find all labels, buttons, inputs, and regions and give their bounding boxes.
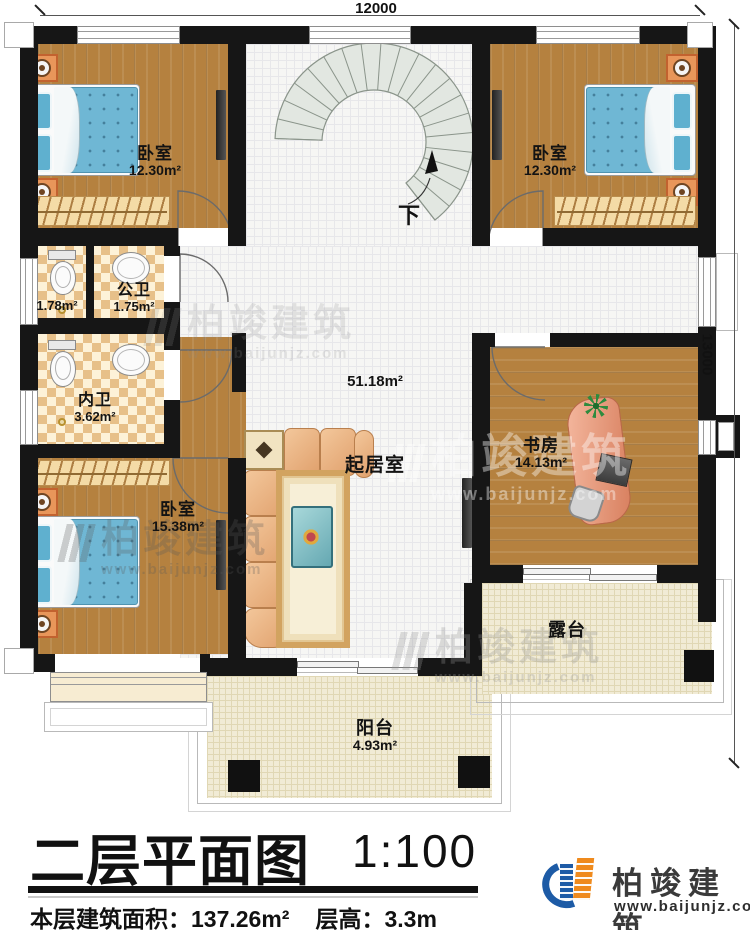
room-label-study: 书房 14.13m² <box>495 436 587 471</box>
interior-wall <box>550 333 716 347</box>
interior-wall <box>657 565 716 583</box>
stair-hall-floor <box>246 44 472 246</box>
room-area: 14.13m² <box>495 455 587 471</box>
room-area: 12.30m² <box>100 163 210 179</box>
interior-wall <box>472 333 495 347</box>
lamp-icon <box>673 59 691 77</box>
bay-window-frame <box>50 708 207 726</box>
logo-url: www.baijunjz.com <box>614 898 750 915</box>
window <box>20 258 38 325</box>
room-label-terrace: 露台 <box>532 620 602 640</box>
window <box>698 257 716 327</box>
interior-wall <box>164 246 180 256</box>
toilet-icon <box>50 351 76 387</box>
window <box>309 26 411 44</box>
column <box>684 650 714 682</box>
tv-icon <box>216 90 226 160</box>
blanket <box>54 519 80 605</box>
room-label-bedroom-top-left: 卧室 12.30m² <box>100 144 210 179</box>
interior-wall <box>472 26 490 246</box>
room-name: 阳台 <box>328 718 422 738</box>
plant-icon <box>584 394 608 418</box>
room-area: 3.62m² <box>50 410 140 425</box>
tv-icon <box>462 478 472 548</box>
floor-height-label: 层高： <box>315 906 384 930</box>
dimension-tick <box>694 4 705 15</box>
sheet-info: 本层建筑面积：137.26m²层高：3.3m <box>30 900 437 930</box>
sink-icon <box>112 344 150 376</box>
equipment-niche-inner <box>718 422 734 451</box>
side-table <box>244 430 284 470</box>
sink-icon <box>112 252 150 284</box>
floor-plan-sheet: 柏竣建筑 www.baijunjz.com 柏竣建筑 www.baijunjz.… <box>0 0 750 930</box>
bay-window <box>50 672 207 702</box>
interior-wall <box>482 565 523 583</box>
sliding-door <box>297 661 359 668</box>
wardrobe <box>28 196 170 226</box>
column <box>458 756 490 788</box>
dimension-line-top <box>40 15 700 16</box>
sheet-title: 二层平面图 <box>30 816 310 896</box>
logo-building-icon <box>560 864 573 900</box>
title-underline <box>28 886 478 893</box>
room-label-living-room: 起居室 <box>328 455 422 476</box>
interior-wall <box>20 228 178 246</box>
table-decor-icon <box>302 528 320 546</box>
blanket <box>54 87 80 173</box>
dimension-tick <box>34 4 45 15</box>
floor-height-value: 3.3m <box>384 906 436 930</box>
company-logo: 柏竣建筑 www.baijunjz.com <box>542 854 742 926</box>
corridor-floor <box>472 246 698 333</box>
room-name: 内卫 <box>50 392 140 410</box>
dimension-bracket <box>4 22 34 48</box>
stairs-down-label: 下 <box>398 198 421 230</box>
window <box>20 390 38 445</box>
sliding-door <box>523 568 591 575</box>
sofa-seat <box>284 428 320 476</box>
room-label-public-bathroom: 公卫 1.75m² <box>95 282 173 314</box>
living-room-area-label: 51.18m² <box>330 374 420 391</box>
pillow <box>672 92 692 130</box>
sliding-door <box>357 667 418 674</box>
interior-wall <box>228 26 246 246</box>
room-label-balcony: 阳台 4.93m² <box>328 718 422 754</box>
column <box>228 760 260 792</box>
pillow <box>672 134 692 172</box>
exterior-wall-south <box>200 658 297 676</box>
room-name: 卧室 <box>122 500 234 519</box>
window <box>698 420 716 455</box>
logo-brand: 柏竣建筑 <box>612 858 742 930</box>
shower-area-label: 1.78m² <box>26 299 88 314</box>
room-name: 卧室 <box>100 144 210 163</box>
room-name: 公卫 <box>95 282 173 300</box>
room-area: 1.75m² <box>95 300 173 315</box>
interior-wall <box>20 444 180 458</box>
room-area: 15.38m² <box>122 519 234 535</box>
dimension-line-right <box>734 24 735 764</box>
floor-area-label: 本层建筑面积： <box>30 906 191 930</box>
dimension-height: 13000 <box>699 320 716 390</box>
room-name: 卧室 <box>495 144 605 163</box>
logo-building-icon <box>573 858 594 900</box>
dimension-bracket <box>687 22 713 48</box>
dimension-bracket <box>4 648 34 674</box>
nightstand <box>666 54 698 82</box>
floor-area-value: 137.26m² <box>191 906 289 930</box>
room-label-private-bathroom: 内卫 3.62m² <box>50 392 140 424</box>
room-area: 12.30m² <box>495 163 605 179</box>
wardrobe <box>554 196 696 226</box>
blanket <box>644 87 670 173</box>
title-underline-thin <box>28 896 478 898</box>
interior-wall <box>472 347 490 583</box>
exterior-wall-west <box>20 26 38 672</box>
wardrobe <box>28 460 170 486</box>
interior-wall <box>232 333 246 392</box>
room-label-bedroom-bottom-left: 卧室 15.38m² <box>122 500 234 535</box>
interior-wall <box>543 228 716 246</box>
interior-wall <box>20 318 180 334</box>
sliding-door <box>589 574 657 581</box>
exterior-wall-south <box>418 658 482 676</box>
room-area: 4.93m² <box>328 738 422 754</box>
room-name: 书房 <box>495 436 587 455</box>
toilet-icon <box>50 261 76 295</box>
interior-wall <box>228 458 246 674</box>
room-label-bedroom-top-right: 卧室 12.30m² <box>495 144 605 179</box>
toilet-tank <box>48 340 76 350</box>
window <box>536 26 640 44</box>
toilet-tank <box>48 250 76 260</box>
sheet-scale: 1:100 <box>352 824 477 878</box>
window <box>77 26 180 44</box>
